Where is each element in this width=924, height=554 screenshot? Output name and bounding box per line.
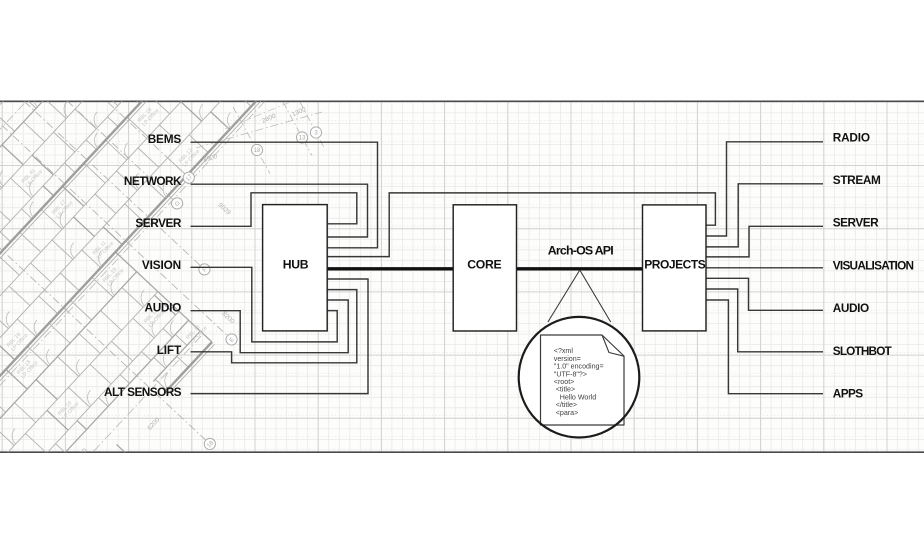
svg-text:LIFT: LIFT xyxy=(157,343,182,357)
svg-text:AUDIO: AUDIO xyxy=(833,301,869,315)
svg-text:BEMS: BEMS xyxy=(148,132,182,146)
svg-text:18: 18 xyxy=(254,148,261,154)
svg-text:SERVER: SERVER xyxy=(135,216,182,230)
svg-text:PROJECTS: PROJECTS xyxy=(644,257,706,271)
svg-text:NETWORK: NETWORK xyxy=(124,174,182,188)
svg-text:APPS: APPS xyxy=(833,387,863,401)
svg-text:RADIO: RADIO xyxy=(833,131,870,145)
svg-text:VISUALISATION: VISUALISATION xyxy=(833,258,914,272)
svg-text:Arch-OS API: Arch-OS API xyxy=(548,244,613,258)
svg-text:13: 13 xyxy=(299,136,306,142)
svg-text:AUDIO: AUDIO xyxy=(144,300,181,314)
svg-text:HUB: HUB xyxy=(283,257,309,271)
svg-text:ALT SENSORS: ALT SENSORS xyxy=(104,385,182,399)
svg-text:CORE: CORE xyxy=(467,257,501,271)
svg-text:SLOTHBOT: SLOTHBOT xyxy=(833,344,893,358)
svg-text:STREAM: STREAM xyxy=(833,173,881,187)
svg-text:SERVER: SERVER xyxy=(833,216,879,230)
svg-text:VISION: VISION xyxy=(142,258,181,272)
